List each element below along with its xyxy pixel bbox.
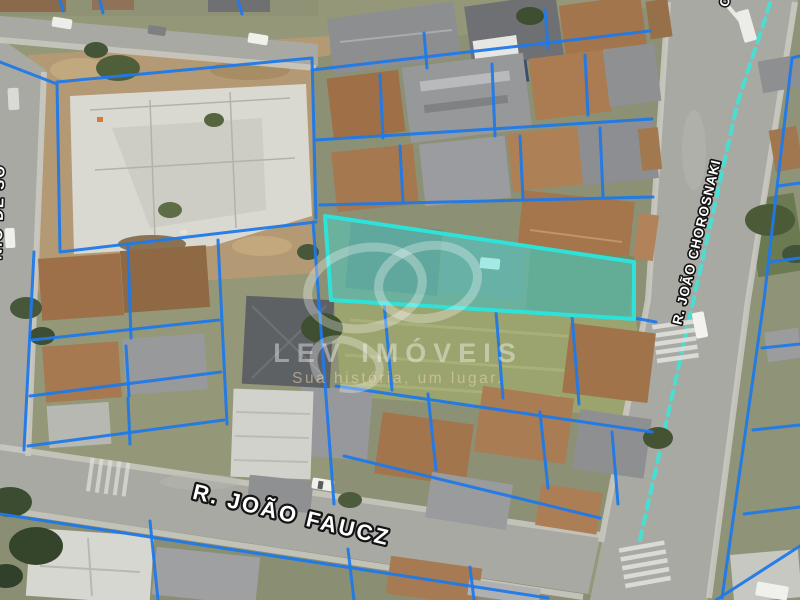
map-canvas[interactable]: LEV IMÓVEIS Sua história, um lugar. R. J…: [0, 0, 800, 600]
aerial-map-view[interactable]: LEV IMÓVEIS Sua história, um lugar. R. J…: [0, 0, 800, 600]
watermark-tagline: Sua história, um lugar.: [292, 370, 504, 387]
watermark-brand: LEV IMÓVEIS: [273, 337, 523, 368]
